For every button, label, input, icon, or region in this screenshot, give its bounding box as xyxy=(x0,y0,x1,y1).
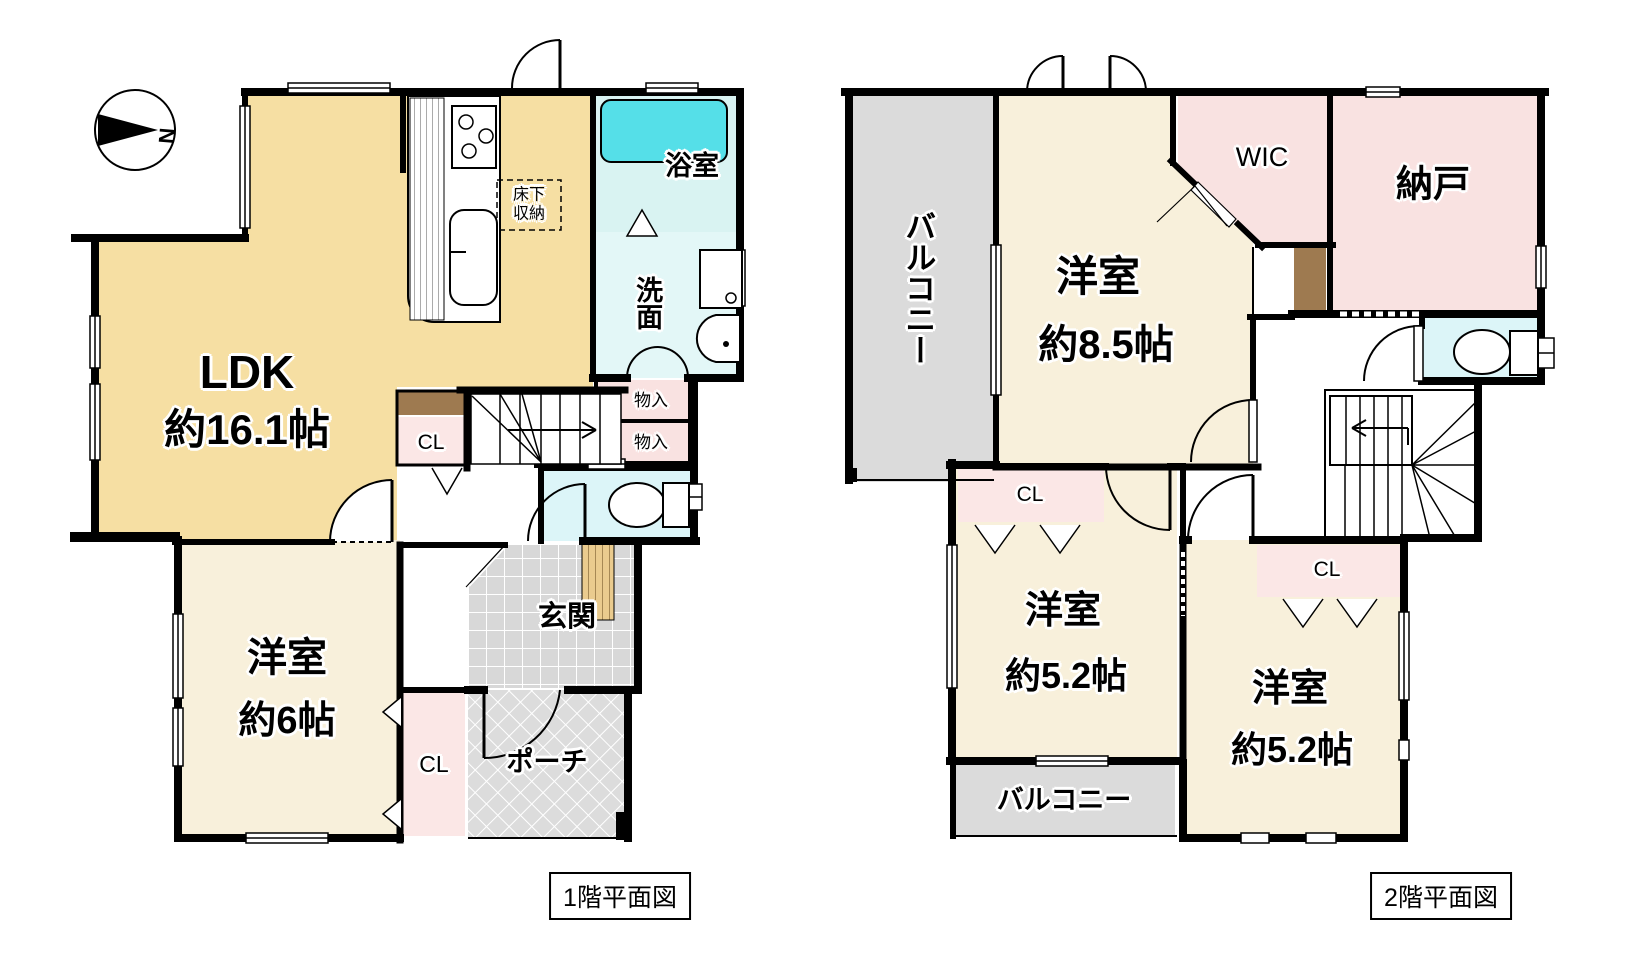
floorplan-drawing: N xyxy=(0,0,1634,959)
label-storage-2: 物入 xyxy=(634,434,668,452)
room-label-western6-size: 約6帖 xyxy=(238,702,335,742)
label-closet-hall: CL xyxy=(418,432,445,454)
room-label-western52e-size: 約5.2帖 xyxy=(1231,731,1353,769)
compass: N xyxy=(95,90,180,170)
room-ldk xyxy=(95,92,593,540)
label-underfloor-1: 床下 xyxy=(513,188,545,205)
kitchen-sink xyxy=(450,210,497,305)
floorplan-page: N xyxy=(0,0,1634,959)
label-closet-east-2f: CL xyxy=(1314,559,1341,581)
wood-ledge-2f xyxy=(1294,247,1326,311)
room-label-western52w-size: 約5.2帖 xyxy=(1005,657,1127,695)
floor1-caption: 1階平面図 xyxy=(549,872,691,920)
label-closet-west-2f: CL xyxy=(1017,484,1044,506)
floor1-stairs xyxy=(471,394,621,464)
room-label-western85: 洋室 xyxy=(1056,255,1140,299)
room-label-western6: 洋室 xyxy=(247,637,327,679)
wood-ledge-1f xyxy=(397,391,467,415)
floor2-stairs xyxy=(1330,396,1478,538)
room-label-western52e: 洋室 xyxy=(1252,670,1328,710)
compass-north-label: N xyxy=(154,127,180,145)
room-western6 xyxy=(178,540,400,838)
room-label-balcony-south: バルコニー xyxy=(997,786,1131,814)
room-label-bath: 浴室 xyxy=(665,152,719,180)
room-label-wic: WIC xyxy=(1236,143,1288,171)
toilet-1f xyxy=(609,483,689,527)
floor2-caption: 2階平面図 xyxy=(1370,872,1512,920)
room-label-storeroom: 納戸 xyxy=(1396,166,1470,205)
room-label-wash: 洗面 xyxy=(633,276,661,330)
room-label-western85-size: 約8.5帖 xyxy=(1038,324,1174,366)
room-label-entrance: 玄関 xyxy=(538,602,596,632)
room-label-western52w: 洋室 xyxy=(1025,592,1101,632)
room-label-balcony-west: バルコニー xyxy=(901,211,934,366)
label-underfloor-2: 収納 xyxy=(513,207,545,224)
label-storage-1: 物入 xyxy=(634,392,668,410)
kitchen-counter xyxy=(408,96,500,322)
room-label-ldk: LDK xyxy=(200,348,295,396)
toilet-2f xyxy=(1454,330,1538,375)
room-label-ldk-size: 約16.1帖 xyxy=(164,408,330,452)
room-label-porch: ポーチ xyxy=(507,748,588,776)
label-closet-south: CL xyxy=(419,752,448,776)
wash-basin xyxy=(697,315,740,362)
laundry-machine xyxy=(700,250,742,308)
